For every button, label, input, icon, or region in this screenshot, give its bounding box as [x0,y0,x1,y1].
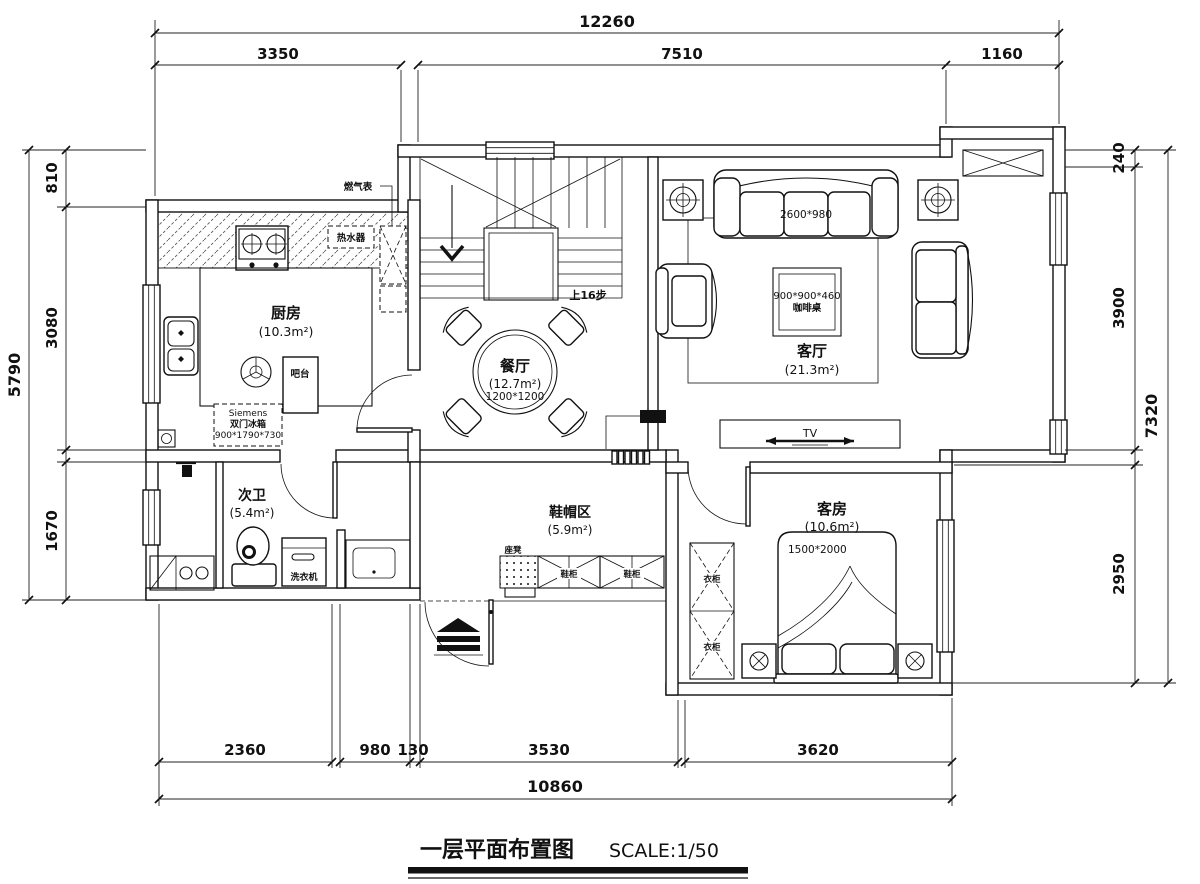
cloak-name: 鞋帽区 [549,504,591,521]
floor-plan-page: 上16步 热水器 燃气表 [0,0,1200,884]
fridge: Siemens 双门冰箱 900*1790*730 [214,404,282,446]
window-living-right-1 [1050,193,1067,265]
water-heater-label: 热水器 [337,232,366,244]
loveseat-icon [912,242,973,358]
guest-room: 衣柜 衣柜 1500*2000 客房 (10.6m²) [690,500,932,683]
guest-door [688,466,750,526]
lamp-table-left-icon [663,180,703,220]
bench-step [505,588,535,597]
bar-counter: 吧台 [283,357,318,413]
coffee-table-icon: 900*900*460 咖啡桌 [773,268,841,336]
fridge-type-label: 双门冰箱 [230,418,266,430]
title-block: 一层平面布置图 SCALE:1/50 [408,837,748,878]
wall-guest-top-left [666,462,688,473]
entry-steps-icon [434,618,483,655]
window-bath-left [143,490,160,545]
bath-area: (5.4m²) [230,506,275,520]
wardrobe-icon: 衣柜 衣柜 [690,543,734,679]
window-guest-right [937,520,954,652]
vanity-icon [346,540,410,588]
wardrobe-1-label: 衣柜 [703,574,721,585]
wall-top-main [398,145,950,157]
wall-vanity-nook [337,530,345,588]
stair-break-lines [421,159,620,227]
nightstand-right-icon [898,644,932,678]
bench-icon [500,556,538,588]
wall-guest-top-right [750,462,952,473]
dining-table-size: 1200*1200 [486,391,545,403]
floor-plan-svg: 上16步 热水器 燃气表 [0,0,1200,884]
shoe-cabinet-2-icon: 鞋柜 [600,556,664,588]
entry-door [425,600,493,666]
bath-cabinet-icon [150,556,214,590]
wall-guest-left [666,450,678,695]
dim-bottom-seg-1: 980 [359,741,390,759]
floor-drain-icon [158,430,175,447]
dim-bottom-seg-3: 3530 [528,741,570,759]
bed-size-label: 1500*2000 [788,544,847,556]
dim-left-seg-1: 3080 [43,307,61,349]
sofa-icon: 2600*980 [714,170,898,238]
stairs-note-label: 上16步 [569,288,606,302]
dim-bottom-overall: 10860 [527,777,583,796]
window-stairs-top [486,142,554,159]
bath-door [281,462,337,518]
dim-top-seg-2: 1160 [981,45,1023,63]
wall-step-right [940,450,1065,462]
toilet-icon [232,527,276,586]
shoe-cabinet-2-label: 鞋柜 [623,569,641,580]
washing-machine-icon: 洗衣机 [282,538,326,586]
wall-guest-bottom [666,683,952,695]
fridge-size-label: 900*1790*730 [215,431,282,441]
dim-bottom-seg-2: 130 [397,741,428,759]
wall-top-right [940,127,1065,139]
tall-cabinet [380,226,406,312]
sofa-size-label: 2600*980 [780,209,832,221]
wall-exterior-right [1053,127,1065,462]
sink-icon [164,317,198,375]
coffee-table-size-label: 900*900*460 [773,291,840,302]
tv-label: TV [802,427,818,440]
kitchen-name: 厨房 [271,304,301,322]
title-underline-thick [408,867,748,874]
guest-area: (10.6m²) [805,519,860,534]
wardrobe-2-label: 衣柜 [703,642,721,653]
dining-room: 餐厅 (12.7m²) 1200*1200 [439,303,591,441]
bar-counter-label: 吧台 [290,368,310,380]
coffee-table-name-label: 咖啡桌 [793,302,822,314]
dim-left-seg-0: 810 [43,162,61,193]
dining-name: 餐厅 [500,357,530,375]
dim-right-overall: 7320 [1142,394,1161,439]
wall-bath-right [410,462,420,588]
wall-bath-divider [216,462,223,588]
armchair-icon [656,264,717,338]
dimensions-left: 5790 810 3080 1670 [5,146,146,604]
living-name: 客厅 [796,342,827,360]
dim-top-overall: 12260 [579,12,635,31]
dimensions-top: 12260 3350 7510 1160 [151,12,1063,196]
wall-kitchen-dining-upper [408,200,420,370]
shoe-cabinet-1-label: 鞋柜 [560,569,578,580]
dim-left-overall: 5790 [5,353,24,398]
wall-kitchen-dining-lower [408,430,420,462]
dim-top-seg-0: 3350 [257,45,299,63]
dim-left-seg-2: 1670 [43,510,61,552]
stool-icon [241,357,271,387]
stairs: 上16步 [420,157,622,302]
lamp-table-right-icon [918,180,958,220]
dim-right-seg-0: 240 [1110,142,1128,173]
tv-cabinet-icon: TV [720,420,900,448]
living-room: 2600*980 900*900*460 咖啡桌 TV [656,170,973,448]
gas-stove-icon [236,226,288,270]
dim-top-seg-1: 7510 [661,45,703,63]
nightstand-left-icon [742,644,776,678]
kitchen-area: (10.3m²) [259,324,314,339]
guest-name: 客房 [816,500,847,518]
kitchen-room: 热水器 燃气表 吧台 Siemens 双 [158,181,408,447]
cloak-area: (5.9m²) [548,523,593,537]
drawing-title: 一层平面布置图 [420,837,574,863]
doors [281,375,750,666]
drawing-scale: SCALE:1/50 [609,840,719,862]
shoe-cabinet-1-icon: 鞋柜 [538,556,600,588]
bath-room: 洗衣机 次卫 (5.4m²) [150,463,410,590]
dim-right-seg-1: 3900 [1110,287,1128,329]
shower-icon [176,463,196,477]
washing-machine-label: 洗衣机 [290,571,317,583]
window-living-right-2 [1050,420,1067,454]
water-heater: 热水器 [328,226,374,248]
window-kitchen-left [143,285,160,403]
dim-bottom-seg-4: 3620 [797,741,839,759]
bench-label: 座凳 [503,545,522,556]
living-area: (21.3m²) [785,362,840,377]
gas-meter-label: 燃气表 [344,181,373,193]
wall-mid-left [146,450,280,462]
kitchen-door [357,375,412,432]
wall-kitchen-top [146,200,408,212]
dim-right-seg-2: 2950 [1110,553,1128,595]
bath-name: 次卫 [238,487,266,504]
fridge-brand-label: Siemens [229,409,268,419]
bed-icon: 1500*2000 [774,532,898,683]
closet-hatch-box [963,150,1043,176]
dim-bottom-seg-0: 2360 [224,741,266,759]
stair-void [484,228,558,300]
cloak-room: 鞋帽区 (5.9m²) 座凳 鞋柜 鞋柜 [500,410,666,597]
dining-area: (12.7m²) [489,377,542,391]
